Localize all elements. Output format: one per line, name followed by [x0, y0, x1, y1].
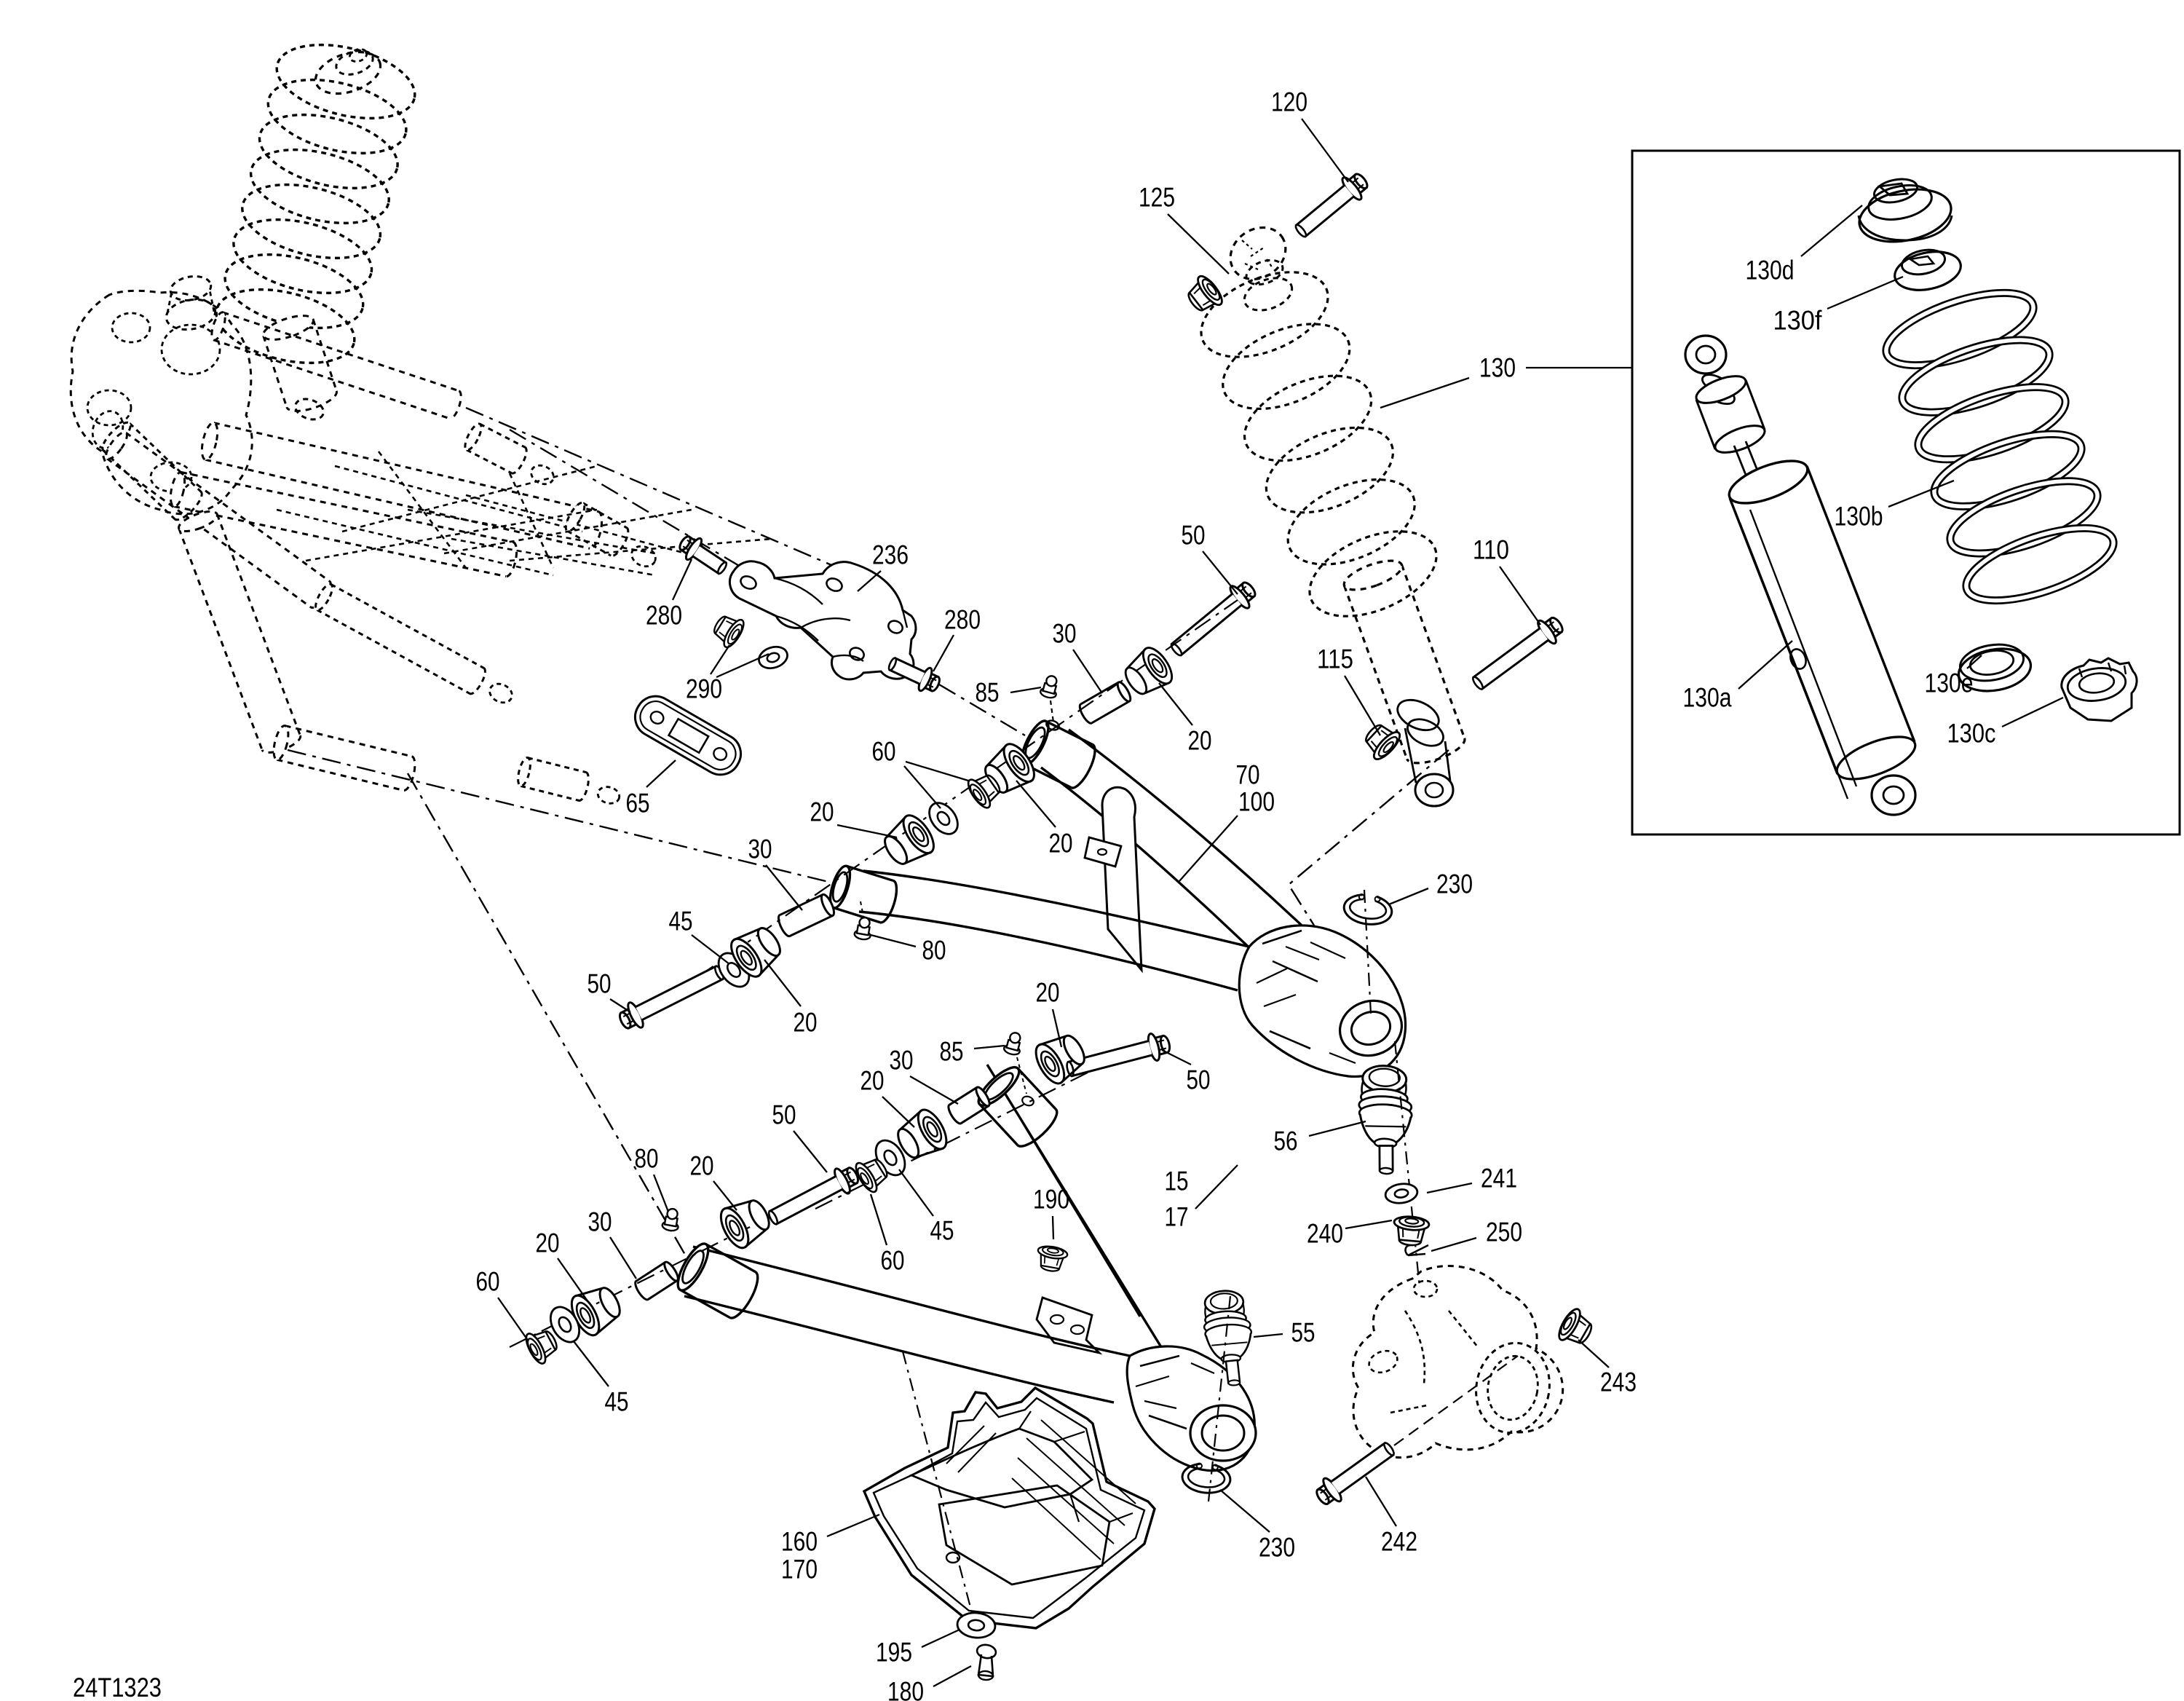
svg-text:130d: 130d	[1746, 256, 1795, 285]
svg-text:20: 20	[690, 1151, 714, 1181]
svg-text:110: 110	[1473, 535, 1509, 565]
svg-text:250: 250	[1486, 1217, 1522, 1247]
svg-text:130b: 130b	[1835, 502, 1883, 532]
svg-text:15: 15	[1165, 1167, 1189, 1196]
svg-text:230: 230	[1259, 1533, 1295, 1563]
svg-text:125: 125	[1139, 183, 1175, 213]
svg-text:30: 30	[748, 834, 772, 864]
svg-text:85: 85	[940, 1037, 964, 1067]
svg-text:80: 80	[635, 1144, 659, 1174]
svg-text:45: 45	[669, 907, 693, 936]
svg-text:60: 60	[476, 1267, 500, 1297]
svg-text:280: 280	[646, 601, 682, 631]
svg-text:236: 236	[872, 540, 909, 570]
svg-text:115: 115	[1317, 644, 1353, 674]
svg-text:50: 50	[587, 969, 612, 999]
svg-text:130f: 130f	[1773, 306, 1823, 336]
svg-text:17: 17	[1165, 1202, 1189, 1232]
svg-text:30: 30	[890, 1046, 914, 1076]
svg-text:85: 85	[976, 678, 1000, 708]
svg-text:130c: 130c	[1947, 719, 1996, 749]
svg-text:30: 30	[588, 1207, 612, 1237]
svg-text:20: 20	[1188, 726, 1212, 756]
svg-text:242: 242	[1381, 1527, 1417, 1557]
svg-text:170: 170	[781, 1555, 818, 1584]
svg-text:60: 60	[872, 737, 896, 767]
svg-text:45: 45	[930, 1216, 954, 1246]
svg-text:195: 195	[876, 1638, 912, 1668]
svg-text:280: 280	[944, 605, 981, 635]
svg-text:70: 70	[1236, 760, 1260, 790]
svg-text:230: 230	[1436, 869, 1473, 899]
svg-text:45: 45	[605, 1387, 629, 1417]
svg-text:243: 243	[1600, 1367, 1637, 1397]
svg-text:20: 20	[1036, 978, 1060, 1008]
svg-text:180: 180	[887, 1677, 924, 1701]
svg-text:24T1323: 24T1323	[73, 1673, 162, 1701]
svg-text:100: 100	[1238, 787, 1275, 817]
svg-text:56: 56	[1274, 1126, 1298, 1156]
svg-text:50: 50	[1187, 1065, 1211, 1095]
svg-text:130a: 130a	[1683, 683, 1732, 713]
svg-text:241: 241	[1481, 1164, 1517, 1193]
svg-text:190: 190	[1033, 1185, 1069, 1215]
svg-text:20: 20	[794, 1008, 818, 1038]
svg-text:20: 20	[810, 797, 834, 827]
svg-text:240: 240	[1307, 1219, 1343, 1249]
svg-text:50: 50	[1182, 521, 1206, 550]
svg-text:55: 55	[1291, 1318, 1315, 1348]
svg-text:50: 50	[772, 1100, 796, 1130]
svg-text:20: 20	[1049, 829, 1073, 859]
svg-text:20: 20	[536, 1228, 560, 1258]
svg-text:20: 20	[860, 1066, 885, 1096]
svg-text:120: 120	[1271, 87, 1307, 117]
svg-text:130e: 130e	[1925, 668, 1974, 698]
svg-text:30: 30	[1053, 619, 1077, 649]
svg-text:80: 80	[922, 936, 946, 966]
svg-text:65: 65	[626, 789, 650, 818]
svg-text:160: 160	[781, 1527, 818, 1557]
svg-text:60: 60	[881, 1246, 905, 1276]
svg-text:290: 290	[686, 674, 722, 704]
svg-text:130: 130	[1479, 353, 1516, 383]
